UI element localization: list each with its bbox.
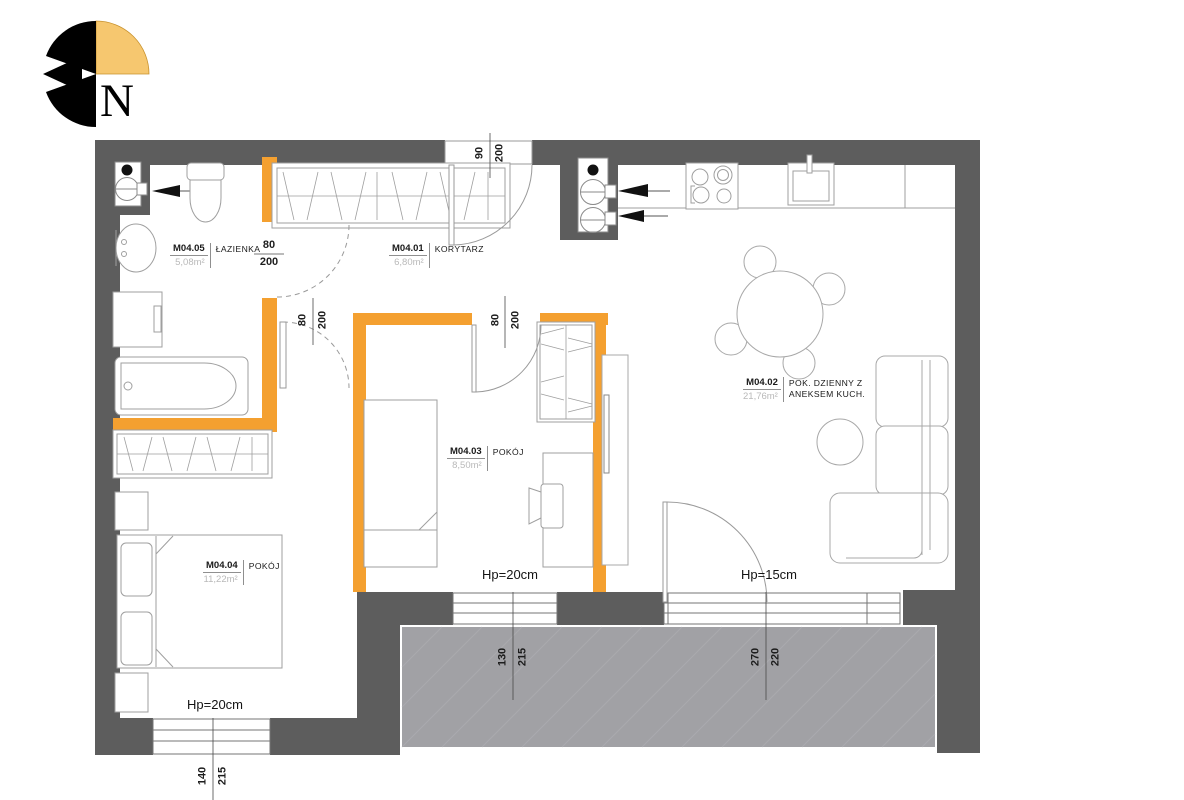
kitchen-sink	[788, 155, 834, 205]
room-name: POKÓJ	[243, 560, 280, 585]
nightstand	[115, 492, 148, 530]
sill-height-living: Hp=15cm	[741, 567, 797, 582]
room-label-corridor: M04.01 6,80m² KORYTARZ	[389, 243, 484, 268]
room-area: 11,22m²	[204, 573, 241, 585]
dim-window-small-room: 130 215	[498, 648, 529, 666]
room-id: M04.03	[447, 446, 485, 459]
room-id: M04.01	[389, 243, 427, 256]
room-id: M04.05	[170, 243, 208, 256]
floor-plan-page: M04.05 5,08m² ŁAZIENKA M04.01 6,80m² KOR…	[0, 0, 1184, 800]
kitchen-shaft-fixture	[578, 158, 670, 233]
bathroom-door	[277, 225, 349, 297]
vent-arrow-icon	[152, 185, 180, 197]
coffee-table	[817, 419, 863, 465]
room-area: 5,08m²	[175, 256, 208, 268]
dining-set	[715, 246, 845, 379]
dining-table	[737, 271, 823, 357]
tv-cabinet	[602, 355, 628, 565]
room-area: 6,80m²	[394, 256, 427, 268]
bathtub	[115, 357, 248, 415]
dim-entrance-door: 90 200	[475, 144, 506, 162]
window-bedroom	[153, 719, 270, 754]
room-label-small-room: M04.03 8,50m² POKÓJ	[447, 446, 524, 471]
room-label-bathroom: M04.05 5,08m² ŁAZIENKA	[170, 243, 260, 268]
bedroom-door	[280, 322, 349, 388]
vent-arrow-icon	[618, 210, 644, 222]
room-area: 21,76m²	[743, 390, 781, 402]
dim-small-room-door: 80 200	[491, 311, 522, 329]
nightstand	[115, 673, 148, 712]
room-area: 8,50m²	[452, 459, 485, 471]
washbasin	[116, 224, 156, 272]
toilet	[187, 163, 224, 222]
corridor-wardrobe	[272, 163, 510, 228]
doors	[277, 165, 767, 602]
washing-machine	[113, 292, 162, 347]
dim-bedroom-door: 80 200	[298, 311, 329, 329]
room-id: M04.02	[743, 377, 781, 390]
room-label-bedroom: M04.04 11,22m² POKÓJ	[203, 560, 280, 585]
desk	[529, 453, 593, 567]
bedroom-wardrobe	[113, 430, 272, 478]
balcony	[402, 627, 935, 747]
hob	[686, 163, 738, 209]
room-name: POK. DZIENNY Z ANEKSEM KUCH.	[783, 377, 865, 402]
room-label-living: M04.02 21,76m² POK. DZIENNY Z ANEKSEM KU…	[743, 377, 865, 402]
sill-height-bedroom: Hp=20cm	[187, 697, 243, 712]
double-bed	[117, 535, 282, 668]
small-room-wardrobe	[537, 322, 595, 422]
compass-quarter	[96, 21, 149, 74]
small-room-door	[472, 325, 541, 392]
single-bed	[364, 400, 437, 567]
room-id: M04.04	[203, 560, 241, 573]
floor-plan-drawing	[0, 0, 1184, 800]
dim-window-bedroom: 140 215	[198, 767, 229, 785]
sill-height-small-room: Hp=20cm	[482, 567, 538, 582]
vent-arrow-icon	[618, 184, 648, 197]
window-small-room	[453, 593, 557, 624]
north-label: N	[100, 78, 134, 125]
balcony-glazing	[664, 593, 900, 624]
dim-bathroom-door: 80 200	[260, 240, 278, 268]
balcony-door	[663, 502, 767, 602]
room-name: POKÓJ	[487, 446, 524, 471]
room-name: KORYTARZ	[429, 243, 484, 268]
dim-balcony-door: 270 220	[751, 648, 782, 666]
room-name: ŁAZIENKA	[210, 243, 261, 268]
